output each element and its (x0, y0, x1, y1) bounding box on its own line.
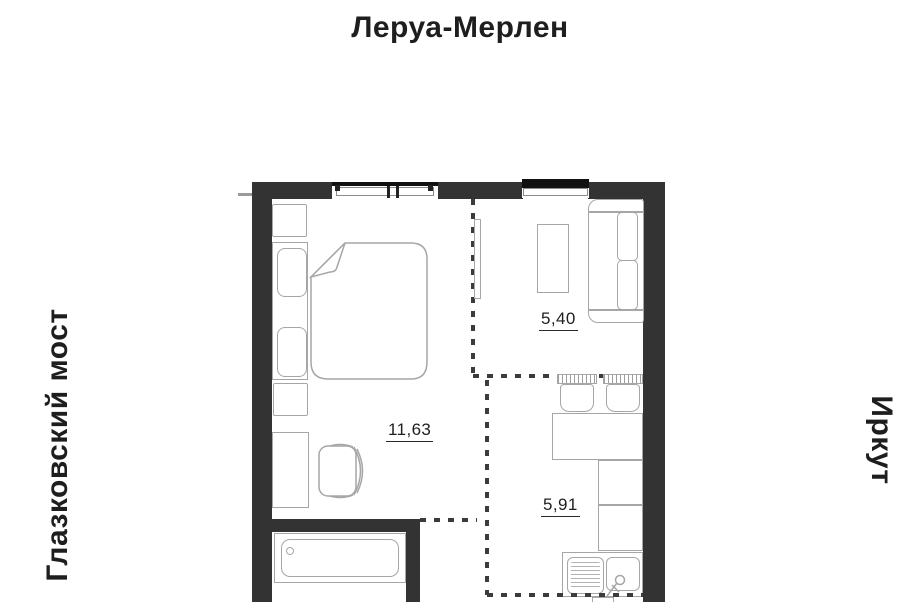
window-icon (522, 179, 589, 198)
room-area-label-living: 11,63 (386, 420, 433, 442)
floor-plan: Леруа-Мерлен Глазковский мост Иркут (0, 0, 920, 602)
dashed-partition-horizontal-bottom (487, 593, 643, 597)
window-glass (336, 187, 434, 196)
pillow-icon (277, 248, 307, 297)
bathroom-wall-top (272, 519, 420, 532)
map-label-top: Леруа-Мерлен (0, 11, 920, 45)
double-bed-icon (309, 241, 429, 381)
nightstand-icon (272, 204, 307, 237)
sofa-cushion (617, 260, 638, 310)
wall-right (643, 182, 665, 602)
coffee-table-icon (537, 224, 569, 293)
neighbor-wall-stub (238, 193, 253, 196)
bar-chair-back (603, 374, 643, 384)
bar-chair-icon (560, 384, 594, 412)
wall-top-segment-2 (438, 182, 523, 199)
dining-table-icon (552, 413, 643, 460)
window-sash-tick (428, 185, 433, 191)
bar-chair-icon (606, 384, 640, 412)
window-icon (332, 182, 438, 199)
dashed-partition-vertical-lower (485, 380, 489, 595)
map-label-right: Иркут (864, 395, 898, 484)
desk-chair-icon (315, 440, 371, 502)
window-sash-tick (387, 186, 390, 198)
window-frame-bar (522, 179, 589, 188)
bathtub-inner (281, 539, 399, 577)
desk-icon (272, 432, 309, 508)
bathtub-drain (286, 547, 294, 555)
room-area-label-kitchen: 5,91 (541, 495, 580, 517)
counter-divider-line (599, 504, 642, 506)
map-label-left: Глазковский мост (41, 308, 75, 581)
window-sash-tick (335, 185, 340, 191)
sink-drainer (567, 557, 604, 594)
wall-top-segment-1 (252, 182, 332, 199)
bar-chair-back (557, 374, 597, 384)
cropped-fixture (592, 597, 614, 602)
dashed-partition-horizontal-left (420, 518, 477, 522)
sofa-cushion (617, 212, 638, 261)
pillow-icon (277, 327, 307, 377)
kitchen-counter-icon (598, 460, 643, 551)
tv-panel-icon (474, 219, 481, 299)
window-sash-tick (396, 186, 399, 198)
room-area-label-lounge: 5,40 (539, 309, 578, 331)
bathroom-wall-right (406, 519, 420, 602)
window-glass (523, 188, 588, 196)
window-frame-bar (332, 182, 438, 186)
shelf-icon (273, 383, 308, 416)
wall-left (252, 182, 272, 602)
